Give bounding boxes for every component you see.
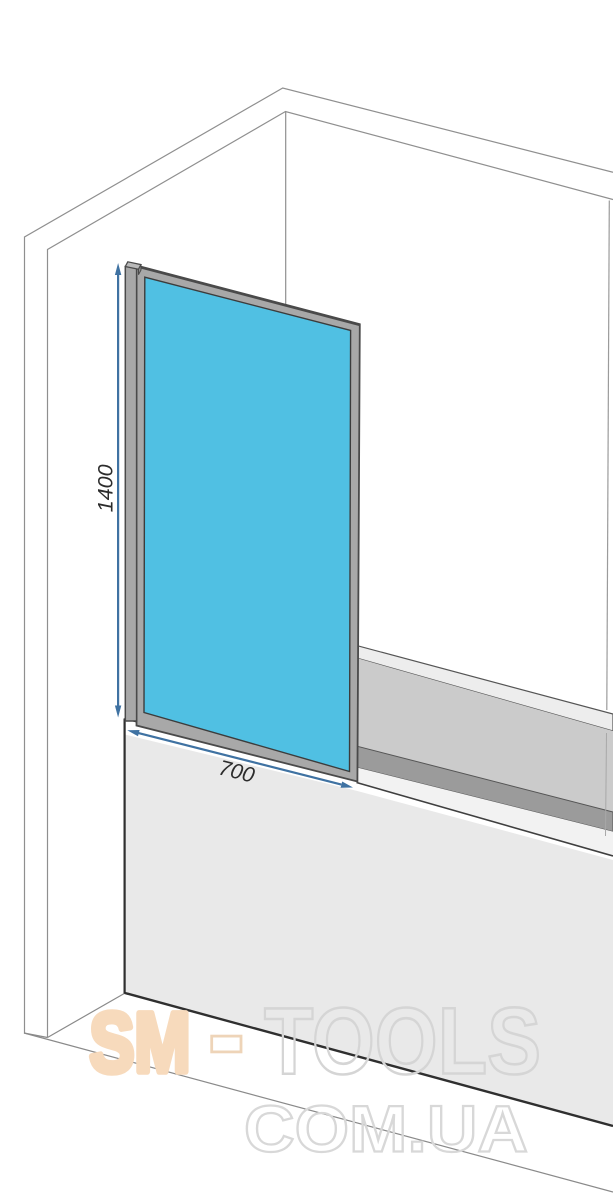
svg-text:1400: 1400 <box>93 464 117 512</box>
svg-text:COM.UA: COM.UA <box>244 1093 528 1166</box>
svg-text:SM: SM <box>90 996 191 1090</box>
svg-text:TOOLS: TOOLS <box>264 988 541 1094</box>
